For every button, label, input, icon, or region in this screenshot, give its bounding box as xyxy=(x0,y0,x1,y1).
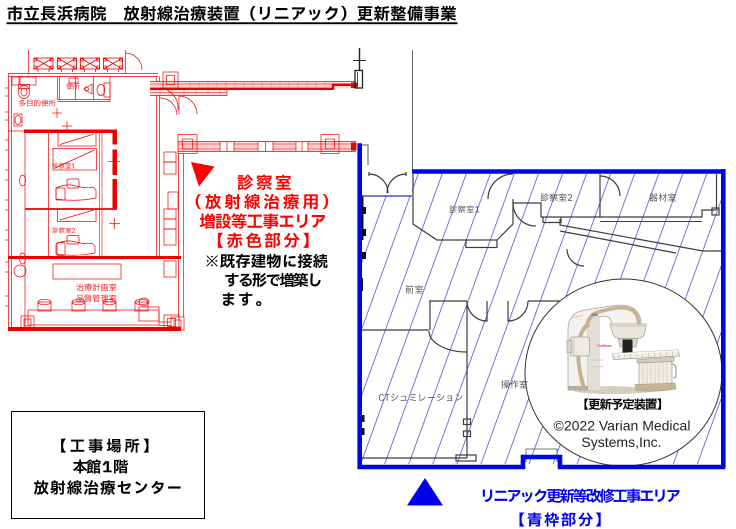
svg-text:TrueBeam: TrueBeam xyxy=(597,344,612,348)
svg-text:©2022 Varian Medical: ©2022 Varian Medical xyxy=(554,418,691,434)
svg-text:Systems,Inc.: Systems,Inc. xyxy=(581,434,661,450)
